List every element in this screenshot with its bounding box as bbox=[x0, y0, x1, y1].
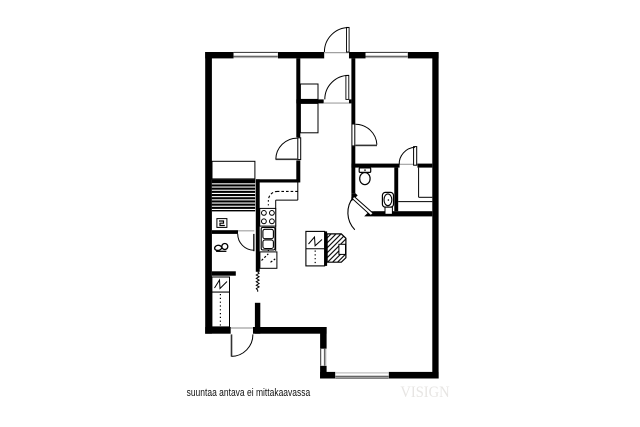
svg-text:VISIGN: VISIGN bbox=[400, 384, 450, 401]
svg-text:suuntaa antava ei mittakaavass: suuntaa antava ei mittakaavassa bbox=[187, 387, 311, 399]
